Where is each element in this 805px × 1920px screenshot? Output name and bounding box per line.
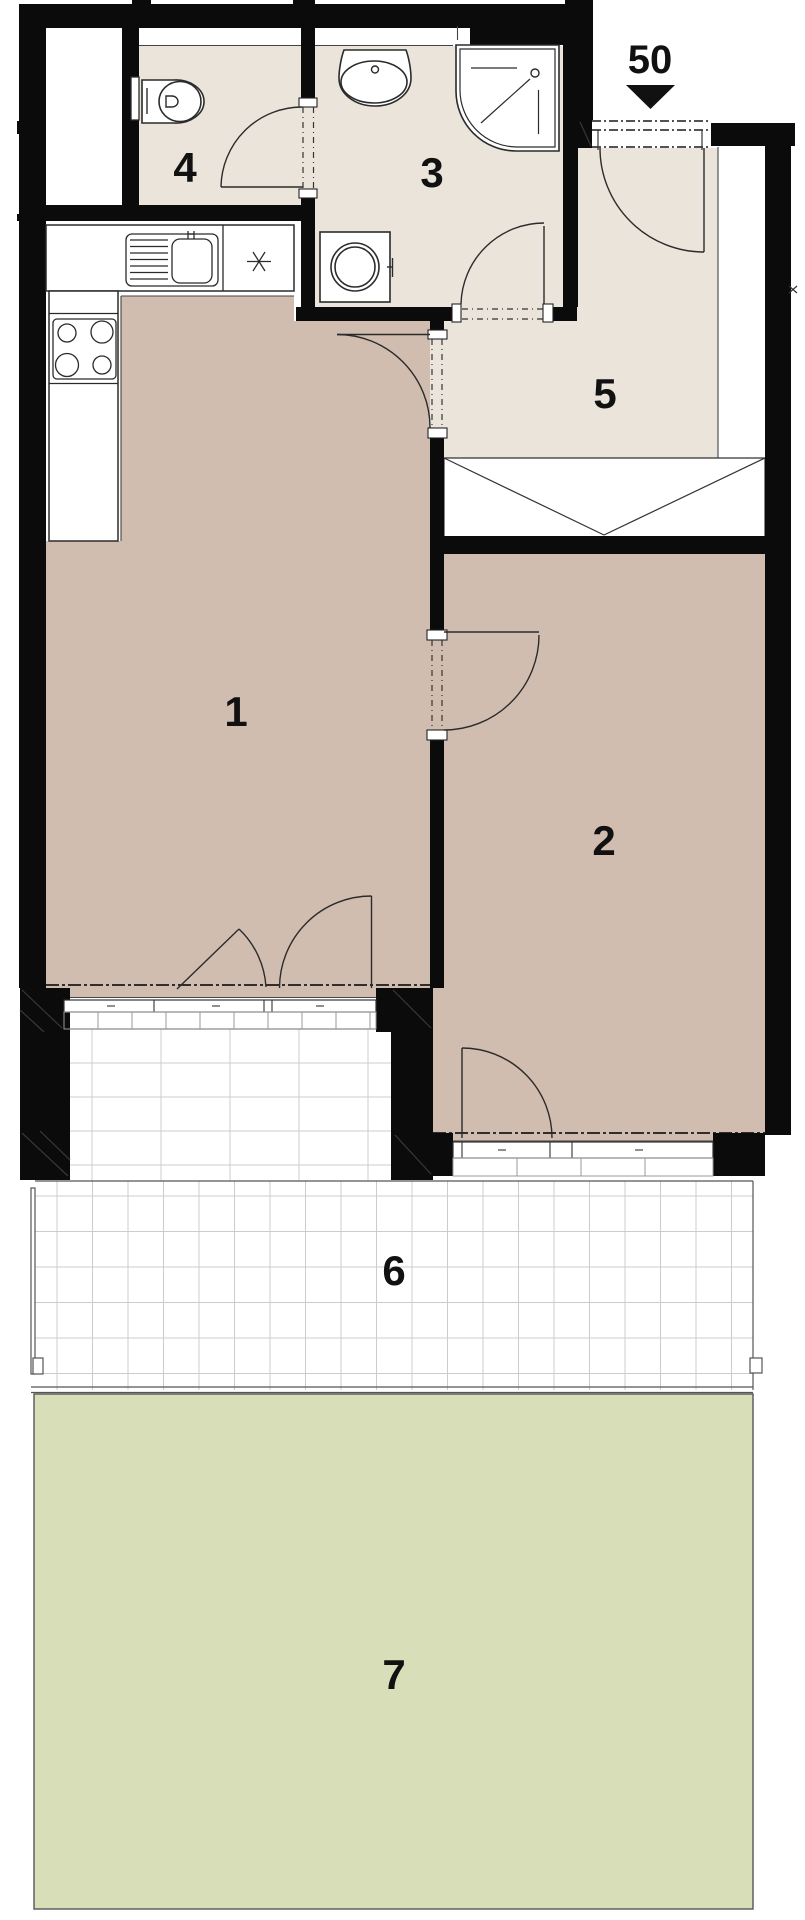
svg-text:6: 6: [382, 1247, 405, 1294]
svg-text:5: 5: [593, 370, 616, 417]
svg-text:50: 50: [628, 38, 673, 82]
svg-text:4: 4: [173, 144, 197, 191]
svg-text:1: 1: [224, 688, 247, 735]
svg-text:2: 2: [592, 817, 615, 864]
svg-text:7: 7: [382, 1651, 405, 1698]
svg-text:3: 3: [420, 149, 443, 196]
